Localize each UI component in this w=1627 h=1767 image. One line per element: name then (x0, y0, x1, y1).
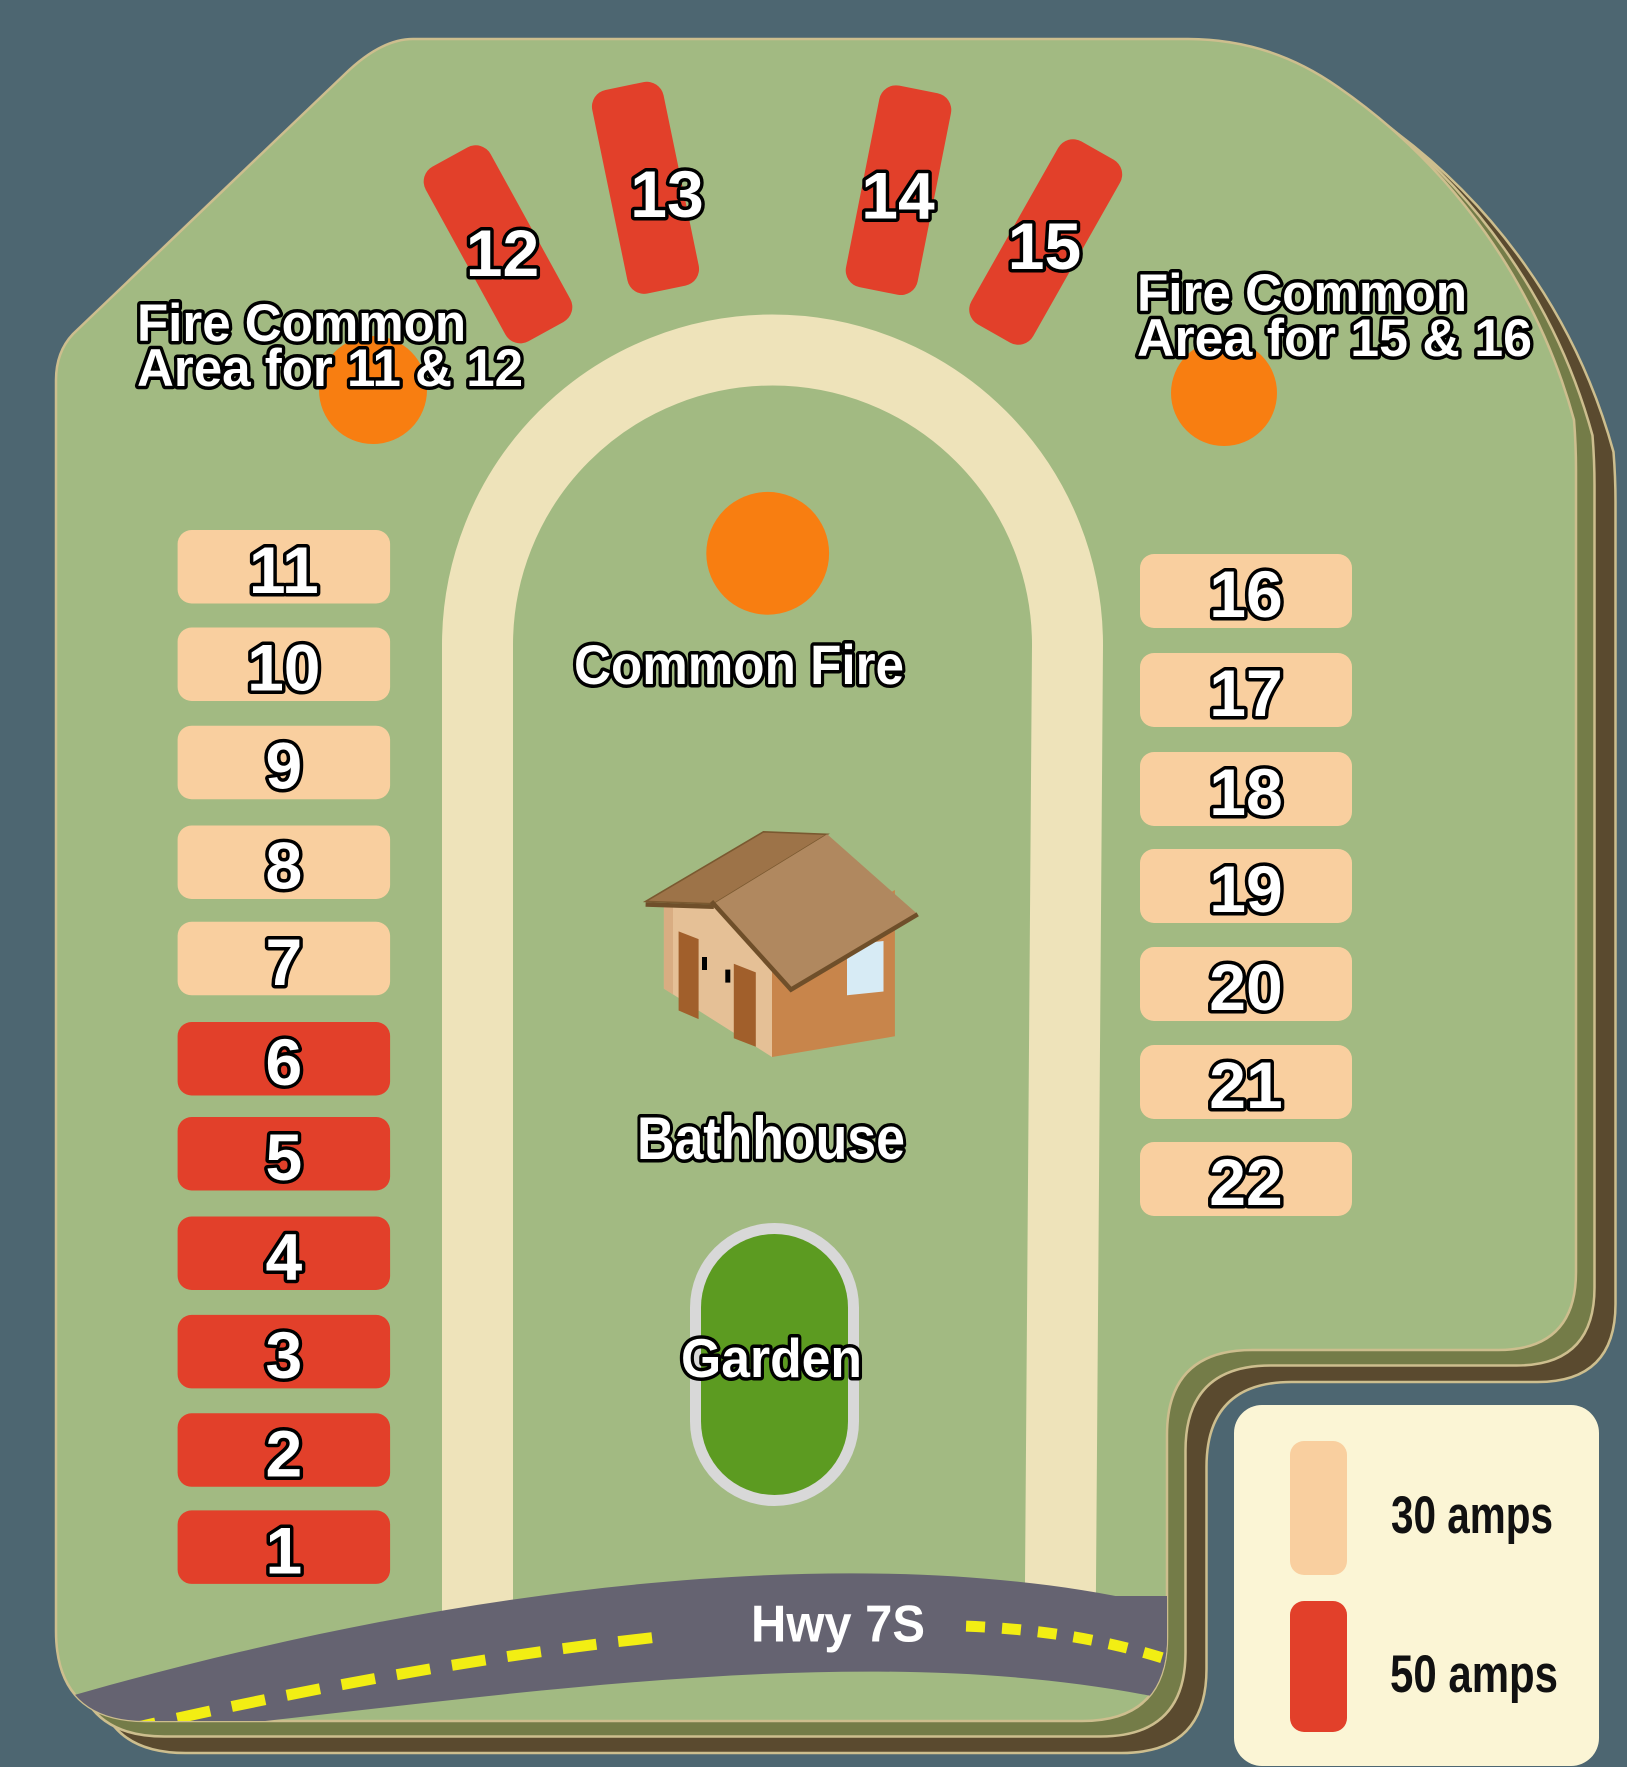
svg-text:3: 3 (265, 1318, 302, 1392)
svg-text:50 amps: 50 amps (1390, 1645, 1558, 1704)
svg-text:18: 18 (1209, 755, 1282, 829)
svg-text:19: 19 (1209, 852, 1282, 926)
svg-text:20: 20 (1209, 950, 1282, 1024)
svg-text:Area for 15 & 16: Area for 15 & 16 (1137, 309, 1532, 368)
svg-text:Common Fire: Common Fire (574, 633, 904, 696)
svg-text:4: 4 (265, 1220, 302, 1294)
svg-text:16: 16 (1209, 557, 1282, 631)
svg-text:13: 13 (630, 157, 703, 231)
svg-text:22: 22 (1209, 1145, 1282, 1219)
svg-text:7: 7 (265, 925, 302, 999)
svg-text:11: 11 (249, 533, 319, 607)
svg-text:Bathhouse: Bathhouse (637, 1105, 905, 1172)
svg-text:14: 14 (861, 159, 935, 233)
svg-text:Area for 11 & 12: Area for 11 & 12 (137, 339, 523, 398)
svg-text:10: 10 (247, 631, 320, 705)
svg-text:21: 21 (1209, 1048, 1282, 1122)
svg-text:15: 15 (1008, 209, 1081, 283)
svg-text:6: 6 (265, 1025, 302, 1099)
svg-text:5: 5 (265, 1120, 302, 1194)
svg-text:30 amps: 30 amps (1391, 1486, 1553, 1545)
svg-text:8: 8 (265, 829, 302, 903)
svg-text:Hwy 7S: Hwy 7S (751, 1596, 925, 1654)
svg-text:9: 9 (265, 729, 302, 803)
svg-text:Garden: Garden (681, 1327, 862, 1389)
svg-text:17: 17 (1209, 656, 1282, 730)
svg-text:12: 12 (466, 216, 539, 290)
svg-text:2: 2 (265, 1416, 302, 1490)
svg-text:1: 1 (265, 1513, 302, 1587)
